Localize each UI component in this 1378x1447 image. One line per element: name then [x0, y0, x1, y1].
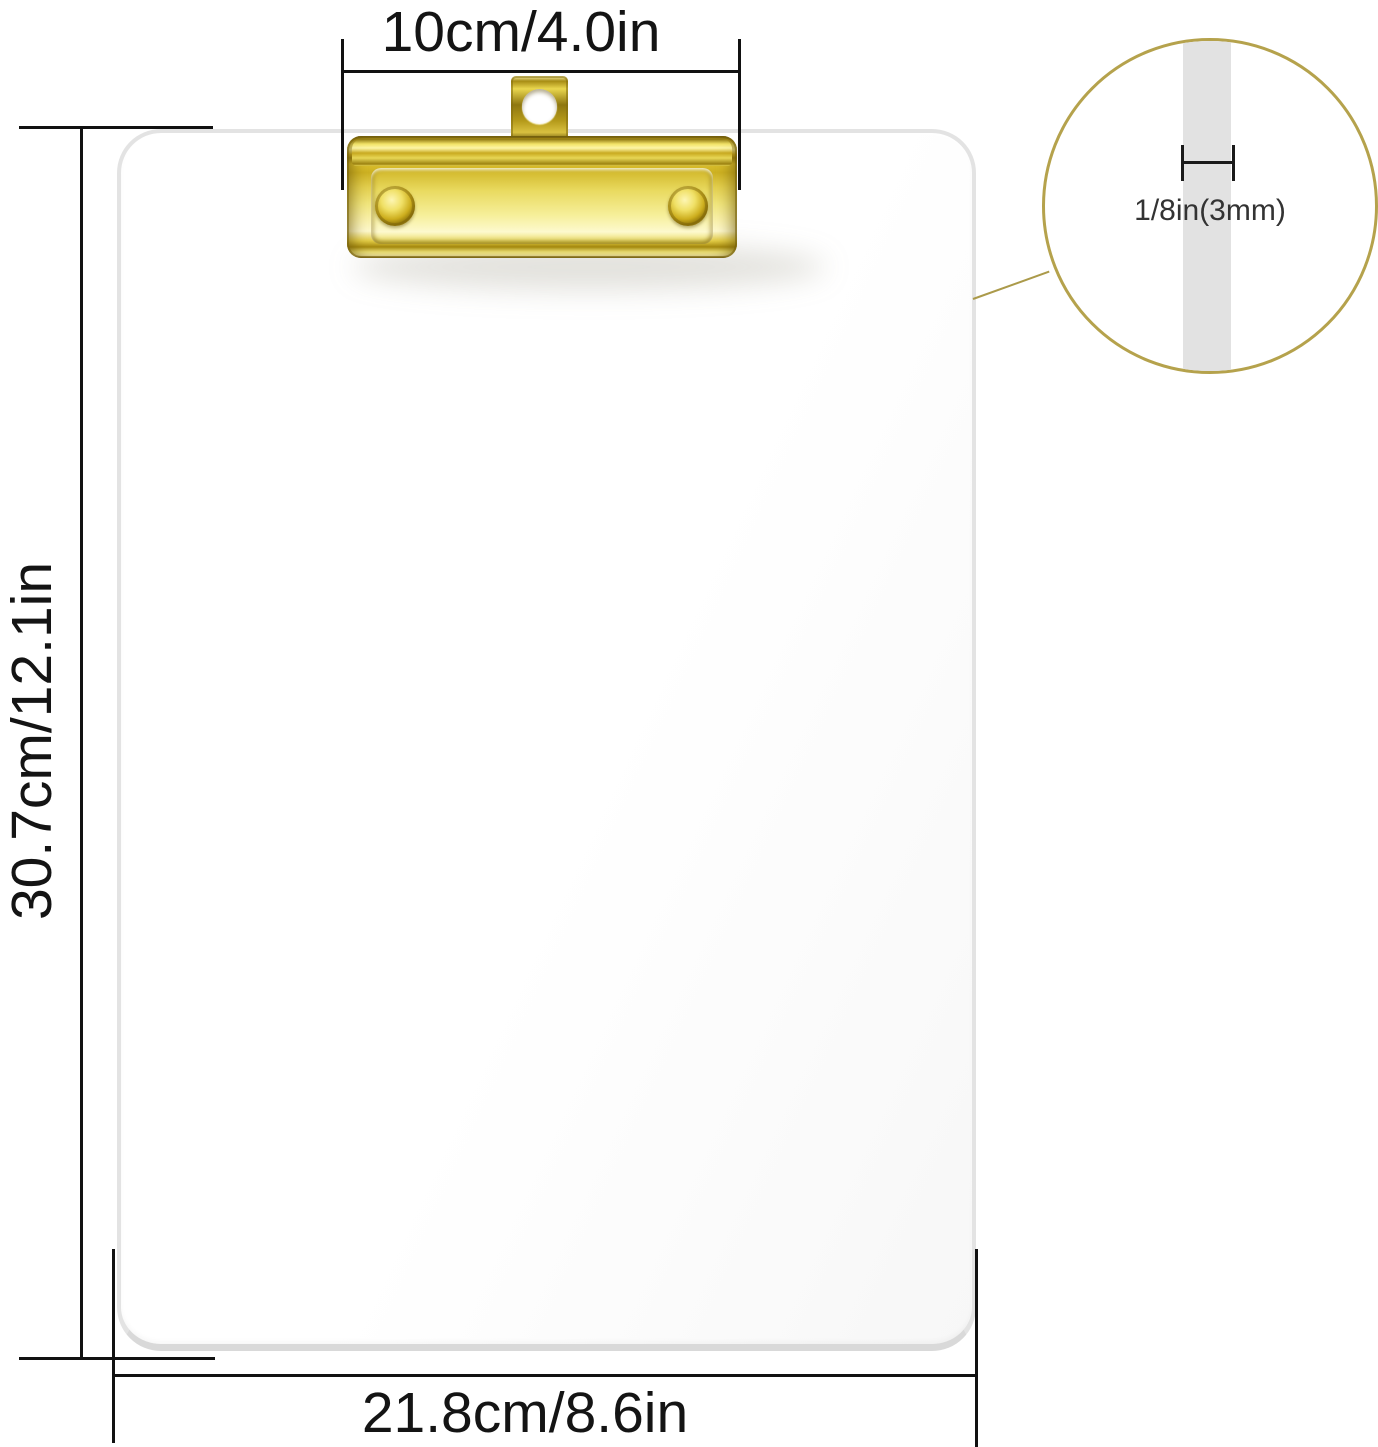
thickness-marker-tick-right: [1232, 145, 1235, 181]
left-dimension-extension-bottom: [19, 1357, 215, 1360]
clip-hinge-bar: [352, 139, 732, 166]
thickness-marker-line: [1181, 161, 1235, 164]
gold-clip: [347, 136, 737, 258]
leader-line: [973, 271, 1050, 300]
thickness-marker-tick-left: [1181, 145, 1184, 181]
top-width-label: 10cm/4.0in: [322, 2, 720, 62]
left-dimension-extension-top: [19, 126, 213, 129]
top-dimension-line: [342, 70, 740, 73]
thickness-detail-circle: 1/8in(3mm): [1042, 38, 1378, 374]
left-height-label: 30.7cm/12.1in: [2, 381, 62, 1101]
left-dimension-line: [80, 128, 83, 1360]
product-dimension-diagram: 10cm/4.0in 30.7cm/12.1in 21.8cm/8.6in 1/…: [0, 0, 1378, 1447]
rivet-left: [375, 186, 415, 226]
clip-face-plate: [371, 168, 713, 244]
clip-hanger-tab: [511, 76, 568, 140]
hanger-hole: [522, 89, 557, 124]
bottom-dimension-line: [112, 1374, 978, 1377]
top-dimension-tick-left: [341, 39, 344, 190]
thickness-label: 1/8in(3mm): [1045, 193, 1375, 229]
bottom-dimension-extension-right: [975, 1249, 978, 1447]
rivet-right: [668, 186, 708, 226]
bottom-dimension-extension-left: [112, 1249, 115, 1443]
clipboard-board: [117, 129, 976, 1351]
top-dimension-tick-right: [738, 39, 741, 190]
bottom-width-label: 21.8cm/8.6in: [92, 1383, 958, 1443]
